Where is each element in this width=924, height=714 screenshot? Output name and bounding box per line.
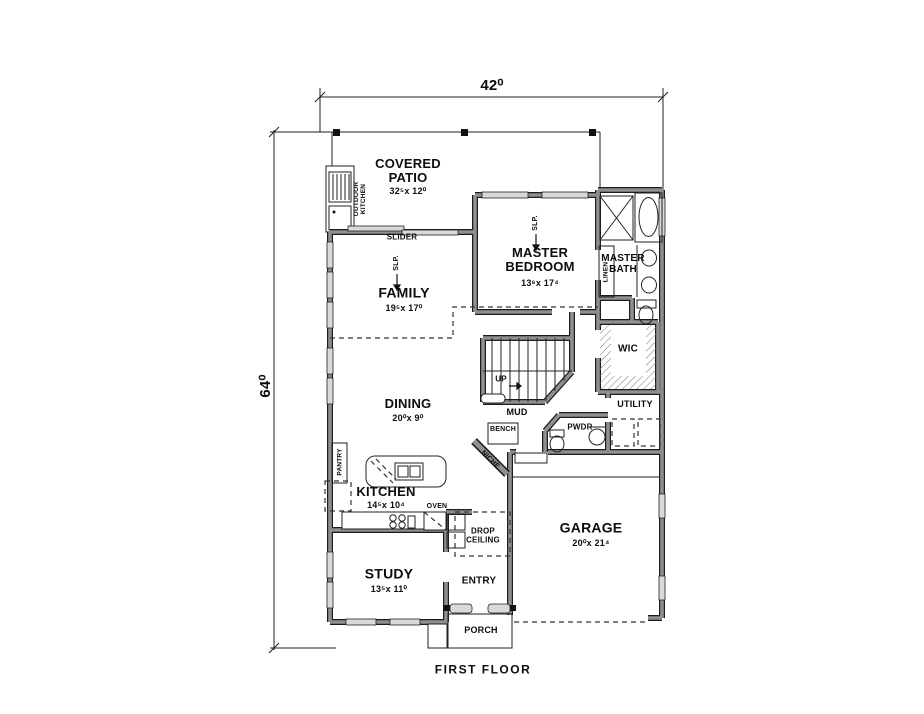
room-dims-family: 19⁵x 17⁰	[386, 304, 423, 314]
room-label-wic: WIC	[618, 345, 638, 356]
sheet-title: FIRST FLOOR	[435, 664, 532, 677]
drop-ceiling-label: DROP CEILING	[466, 527, 500, 544]
garage-step	[515, 453, 547, 463]
outdoor-kitchen-label: OUTDOOR KITCHEN	[353, 182, 367, 217]
dimension-width-label: 42⁰	[480, 78, 503, 94]
slp-label-master: SLP.	[532, 215, 540, 230]
pantry-label: PANTRY	[336, 448, 343, 475]
sink	[642, 277, 657, 293]
washer	[612, 419, 634, 446]
room-label-family: FAMILY	[378, 285, 429, 300]
up-label: UP	[495, 376, 507, 385]
dimension-depth-label: 64⁰	[258, 374, 274, 397]
room-dims-covered-patio: 32⁵x 12⁰	[390, 187, 427, 197]
room-dims-master-bedroom: 13⁶x 17⁴	[521, 279, 559, 289]
room-label-garage: GARAGE	[560, 520, 623, 535]
room-label-utility: UTILITY	[617, 400, 652, 410]
wic-closet-rods	[600, 325, 657, 389]
staircase	[481, 338, 572, 403]
linen-label: LINEN	[602, 262, 609, 283]
oven-label: OVEN	[427, 503, 448, 511]
floor-plan: 42⁰ 64⁰ COVERED PATIO 32⁵x 12⁰ OUTDOOR K…	[0, 0, 924, 714]
tub	[639, 198, 658, 237]
room-dims-kitchen: 14⁵x 10⁴	[367, 501, 405, 511]
room-label-kitchen: KITCHEN	[356, 485, 415, 499]
toilet-tank	[637, 300, 656, 308]
room-label-porch: PORCH	[464, 626, 498, 636]
room-label-entry: ENTRY	[462, 577, 497, 588]
dryer	[638, 419, 660, 446]
front-door-panel	[488, 604, 510, 613]
front-door-panel	[450, 604, 472, 613]
room-label-master-bedroom: MASTER BEDROOM	[505, 246, 574, 274]
porch-pier	[428, 624, 447, 648]
room-dims-garage: 20⁰x 21⁴	[572, 539, 609, 549]
room-label-mud: MUD	[506, 408, 527, 418]
room-label-study: STUDY	[365, 566, 413, 581]
floor-plan-svg	[0, 0, 924, 714]
slider-label: SLIDER	[387, 234, 418, 243]
slp-label-family: SLP.	[393, 255, 401, 270]
room-label-pwdr: PWDR	[567, 424, 592, 433]
covered-patio-outline	[326, 129, 600, 232]
room-label-dining: DINING	[385, 397, 432, 411]
room-dims-dining: 20⁰x 9⁰	[392, 414, 423, 424]
entry-cabinet	[447, 514, 465, 530]
room-label-covered-patio: COVERED PATIO	[375, 157, 441, 185]
bench-label: BENCH	[490, 426, 516, 434]
room-dims-study: 13⁵x 11⁰	[371, 585, 407, 595]
